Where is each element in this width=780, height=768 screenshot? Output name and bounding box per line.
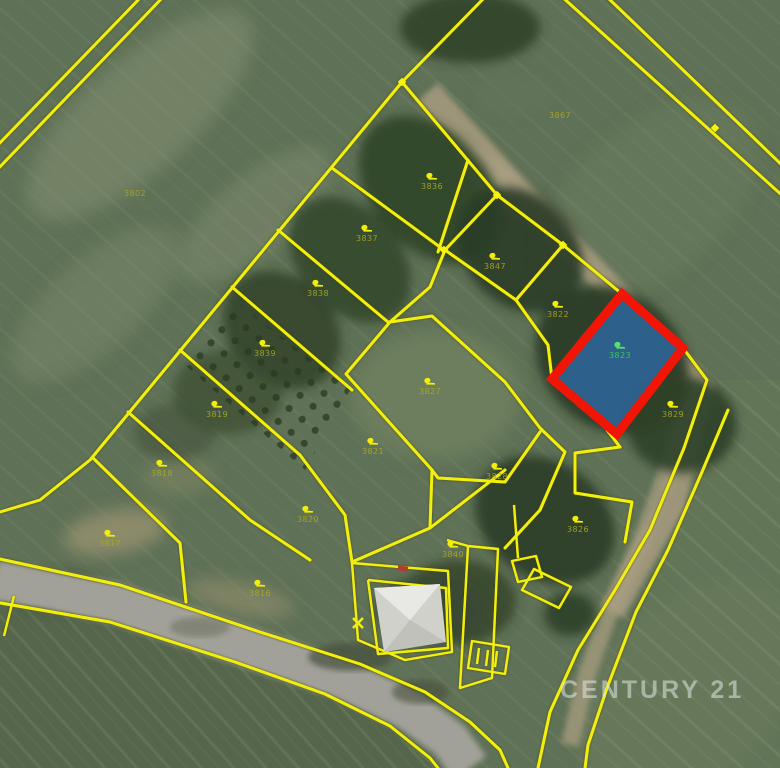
parcel-number-label: 3839 bbox=[254, 349, 276, 358]
parcel-number-label: 3847 bbox=[484, 262, 506, 271]
parcel-number-label: 3817 bbox=[99, 539, 121, 548]
parcel-number-label: 3840 bbox=[442, 550, 464, 559]
parcel-number-label: 3821 bbox=[362, 447, 384, 456]
map-canvas: 3836384738223823382938373838383938193818… bbox=[0, 0, 780, 768]
parcel-number-label: 3820 bbox=[297, 515, 319, 524]
field-parcel-number-label: 3802 bbox=[124, 189, 146, 198]
parcel-number-label: 3819 bbox=[206, 410, 228, 419]
century21-watermark: CENTURY 21 bbox=[560, 676, 780, 705]
parcel-number-label: 3837 bbox=[356, 234, 378, 243]
parcel-number-label: 3827 bbox=[419, 387, 441, 396]
parcel-number-label: 3818 bbox=[151, 469, 173, 478]
parcel-number-label: 3816 bbox=[249, 589, 271, 598]
parcel-boundary bbox=[430, 470, 432, 528]
parcel-number-label: 3836 bbox=[421, 182, 443, 191]
parcel-number-label: 3826 bbox=[567, 525, 589, 534]
parcel-number-label: 3822 bbox=[547, 310, 569, 319]
parcel-number-label: 3823 bbox=[609, 351, 631, 360]
parcel-number-label: 3829 bbox=[662, 410, 684, 419]
parcel-number-label: 3838 bbox=[307, 289, 329, 298]
parcel-number-label: 3828 bbox=[486, 472, 508, 481]
field-parcel-number-label: 3867 bbox=[549, 111, 571, 120]
aerial-cadastral-map[interactable]: 3836384738223823382938373838383938193818… bbox=[0, 0, 780, 768]
